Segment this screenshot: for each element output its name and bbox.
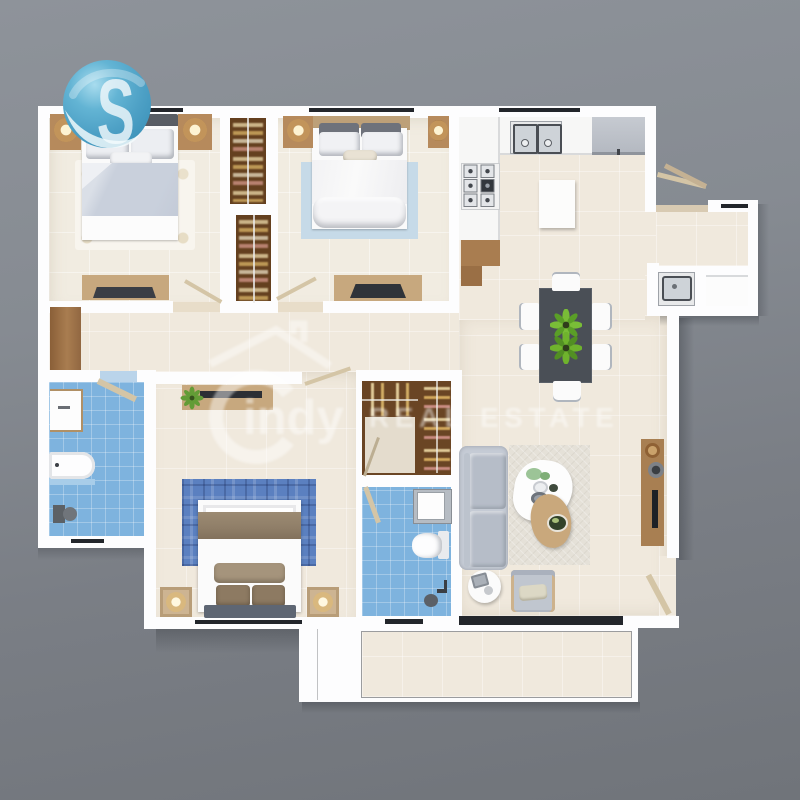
svg-text:REAL ESTATE: REAL ESTATE — [369, 402, 619, 433]
svg-text:S: S — [97, 61, 135, 151]
svg-text:indy: indy — [243, 391, 344, 445]
